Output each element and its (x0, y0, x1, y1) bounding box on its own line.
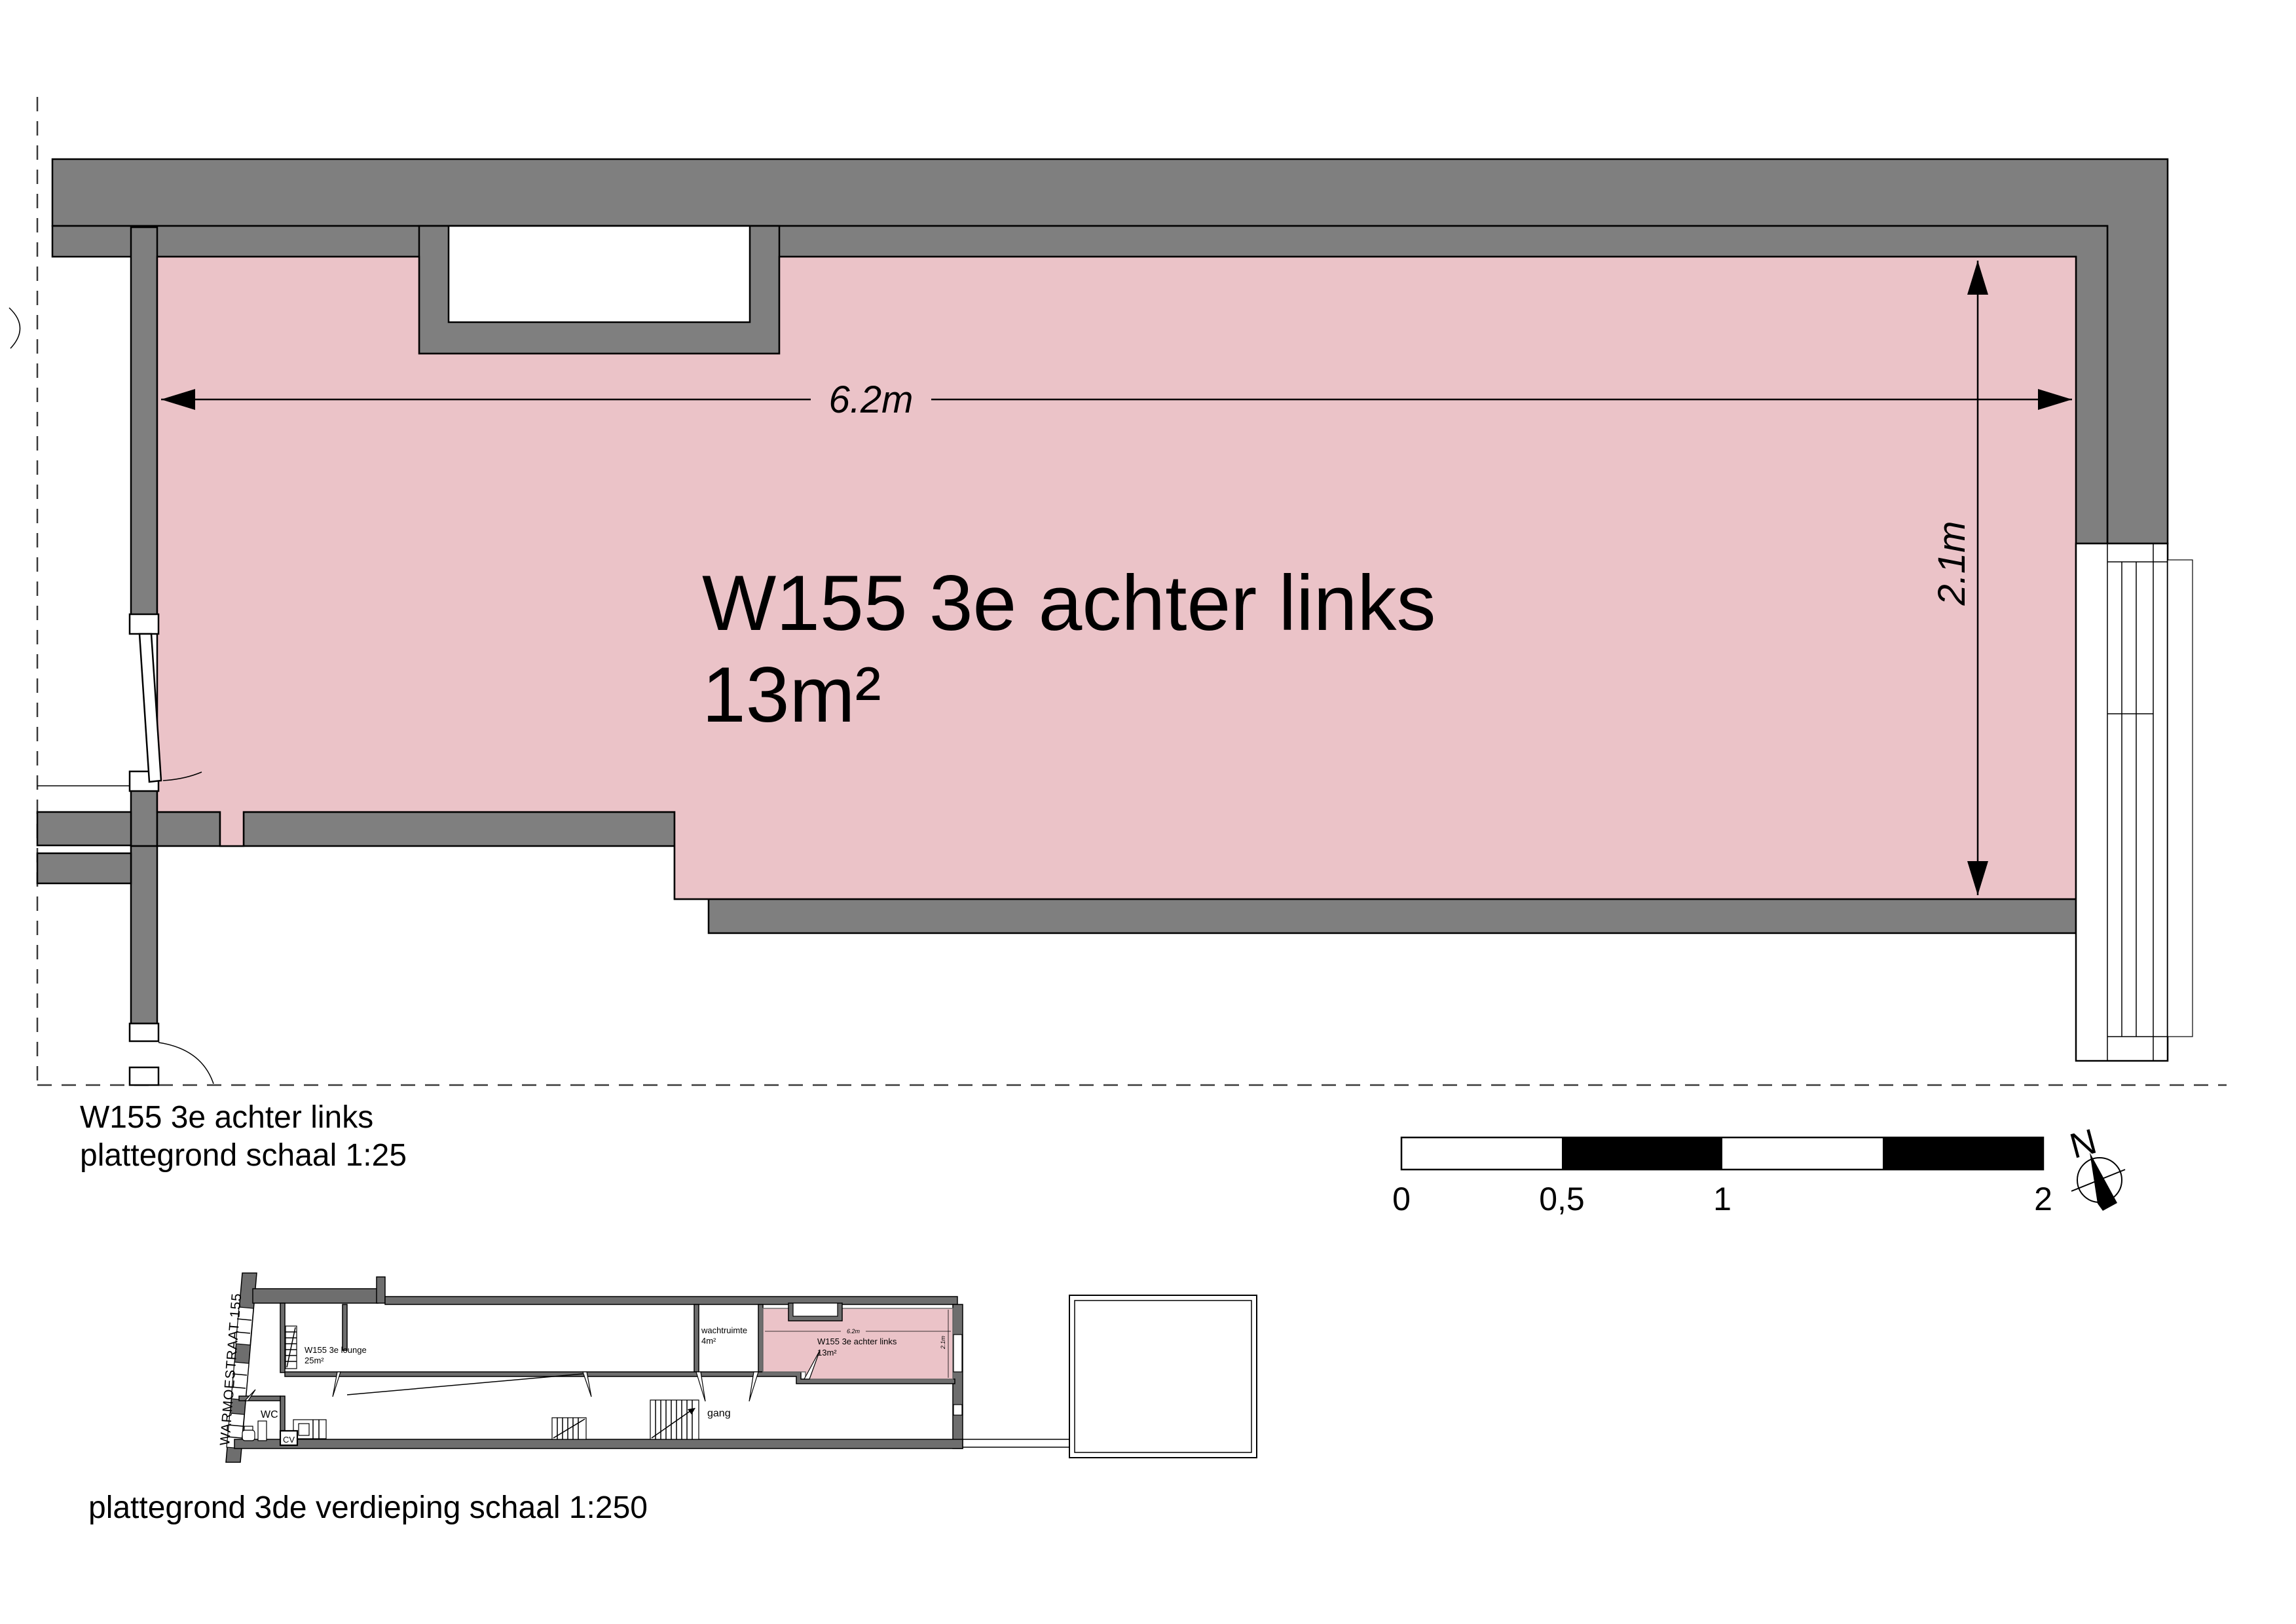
main-plan-caption: W155 3e achter links plattegrond schaal … (80, 1100, 407, 1173)
dimension-height-label: 2.1m (1931, 521, 1973, 606)
left-arc-fragment (9, 308, 20, 348)
bottom-wall (234, 1439, 963, 1449)
neighbour-door-frame-top (130, 1024, 158, 1041)
floor-plan-sheet: 6.2m 2.1m W155 3e achter links 13m² W155… (0, 0, 2296, 1624)
cv-label: CV (283, 1435, 295, 1445)
room-name: W155 3e achter links (702, 559, 1436, 647)
room-area: 13m² (702, 651, 881, 739)
door-frame-top (130, 614, 158, 634)
overview-room-label: W155 3e achter links (817, 1337, 897, 1346)
overview-caption: plattegrond 3de verdieping schaal 1:250 (88, 1490, 648, 1525)
wc-room-label: WC (261, 1409, 278, 1420)
overview-dim-height: 2.1m (940, 1335, 946, 1350)
cv-unit: CV (280, 1431, 297, 1445)
right-wall (953, 1304, 963, 1449)
neighbour-door (130, 1024, 213, 1085)
neighbour-door-arc (158, 1043, 213, 1084)
lounge-label: W155 3e lounge (305, 1345, 367, 1355)
overview-plan: 6.2m 2.1m (217, 1273, 1257, 1462)
scale-label-05: 0,5 (1539, 1181, 1585, 1217)
left-wall-lowest (131, 846, 157, 1024)
rear-building (963, 1295, 1257, 1458)
gang-label: gang (707, 1408, 731, 1419)
overview-window-2 (954, 1405, 962, 1415)
neighbour-wall-2 (37, 853, 131, 883)
caption-title: W155 3e achter links (80, 1100, 373, 1135)
partition-entry (280, 1303, 285, 1373)
scale-label-1: 1 (1713, 1181, 1731, 1217)
top-wall-left (253, 1289, 378, 1303)
scale-label-2: 2 (2034, 1181, 2052, 1217)
north-arrow: N (2065, 1122, 2125, 1211)
scale-bar: 0 0,5 1 2 (1392, 1137, 2052, 1217)
top-wall-right (385, 1297, 957, 1304)
rear-building-inner (1075, 1301, 1251, 1452)
caption-scale: plattegrond schaal 1:25 (80, 1138, 407, 1173)
overview-shaft-void (793, 1303, 838, 1316)
overview-room-area-label: 13m² (817, 1348, 837, 1357)
top-wall-tab (377, 1277, 385, 1303)
neighbour-wall-1 (37, 812, 131, 845)
overview-dim-width: 6.2m (847, 1328, 861, 1335)
overview-window-1 (954, 1335, 962, 1372)
wc-fixtures (242, 1421, 267, 1441)
stairs-entry (286, 1326, 297, 1369)
right-windows (2076, 544, 2193, 1061)
stairs-small (552, 1418, 586, 1439)
wachtruimte-label: wachtruimte (701, 1325, 747, 1335)
left-wall-upper (131, 227, 157, 616)
stairs-main (650, 1400, 699, 1439)
scale-label-0: 0 (1392, 1181, 1411, 1217)
main-plan: 6.2m 2.1m W155 3e achter links 13m² (9, 97, 2227, 1085)
kitchen-block (293, 1420, 326, 1439)
neighbour-door-frame-bottom (130, 1067, 158, 1085)
lounge-area-label: 25m² (305, 1356, 324, 1365)
partition-wachtruimte-left (694, 1304, 699, 1372)
dimension-width-label: 6.2m (829, 378, 914, 421)
scale-bar-black-2 (1883, 1137, 2043, 1170)
scale-bar-black-1 (1562, 1137, 1722, 1170)
partition-lounge (343, 1304, 347, 1350)
left-wall-lower (131, 789, 157, 846)
partition-wachtruimte-right (758, 1304, 763, 1372)
window-frame-outrigger (2168, 560, 2193, 1037)
shaft-void (449, 226, 750, 322)
north-label: N (2065, 1122, 2100, 1166)
wachtruimte-area-label: 4m² (701, 1336, 716, 1346)
